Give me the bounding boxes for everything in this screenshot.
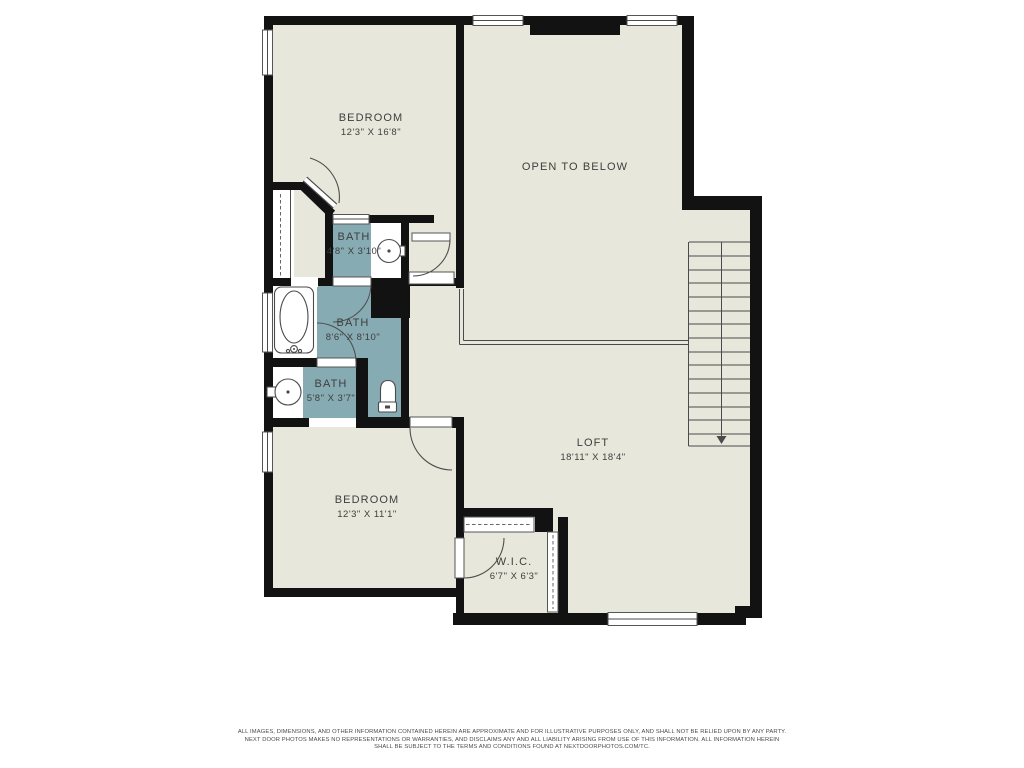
room-name: BATH — [326, 317, 380, 329]
room-name: BATH — [307, 378, 356, 390]
door-leaf — [410, 417, 452, 427]
door-leaf — [412, 233, 450, 241]
window — [627, 16, 677, 26]
room-label-bath-top: BATH 4'8" X 3'10" — [327, 231, 381, 257]
chase-wall — [371, 278, 410, 318]
room-label-loft: LOFT 18'11" X 18'4" — [560, 437, 625, 463]
linen-closet-floor — [273, 190, 290, 278]
bathtub-icon — [275, 287, 314, 353]
room-name: OPEN TO BELOW — [522, 161, 628, 173]
nook-floor — [403, 278, 456, 418]
room-label-bath-mid: BATH 8'6" X 8'10" — [326, 317, 380, 343]
room-label-bedroom2: BEDROOM 12'3" X 11'1" — [335, 494, 400, 520]
room-label-bath-low: BATH 5'8" X 3'7" — [307, 378, 356, 404]
room-name: LOFT — [560, 437, 625, 449]
room-name: BEDROOM — [339, 112, 404, 124]
floor-plan-page: BEDROOM 12'3" X 16'8" OPEN TO BELOW BATH… — [0, 0, 1024, 768]
window — [333, 215, 369, 225]
room-name: BEDROOM — [335, 494, 400, 506]
room-dims: 6'7" X 6'3" — [490, 571, 539, 582]
door-leaf — [455, 538, 464, 578]
room-dims: 4'8" X 3'10" — [327, 246, 381, 257]
window — [473, 16, 523, 26]
disclaimer-line: NEXT DOOR PHOTOS MAKES NO REPRESENTATION… — [0, 737, 1024, 745]
room-label-open-below: OPEN TO BELOW — [522, 161, 628, 173]
room-name: W.I.C. — [490, 556, 539, 568]
room-dims: 18'11" X 18'4" — [560, 452, 625, 463]
cased-opening — [409, 272, 454, 284]
room-name: BATH — [327, 231, 381, 243]
room-label-wic: W.I.C. 6'7" X 6'3" — [490, 556, 539, 582]
door-leaf — [333, 277, 371, 286]
disclaimer-line: ALL IMAGES, DIMENSIONS, AND OTHER INFORM… — [0, 729, 1024, 737]
room-dims: 8'6" X 8'10" — [326, 332, 380, 343]
toilet-icon — [379, 381, 397, 413]
open-below-floor — [456, 16, 694, 212]
room-label-bedroom1: BEDROOM 12'3" X 16'8" — [339, 112, 404, 138]
disclaimer: ALL IMAGES, DIMENSIONS, AND OTHER INFORM… — [0, 729, 1024, 752]
window — [263, 293, 273, 352]
window — [608, 613, 697, 626]
bedroom1-floor — [272, 24, 456, 190]
door-leaf — [317, 358, 356, 367]
room-dims: 12'3" X 16'8" — [339, 127, 404, 138]
room-dims: 5'8" X 3'7" — [307, 393, 356, 404]
floor-plan-drawing — [0, 0, 1024, 768]
room-dims: 12'3" X 11'1" — [335, 509, 400, 520]
window — [263, 30, 273, 75]
doorway-gap — [291, 277, 318, 287]
disclaimer-line: SHALL BE SUBJECT TO THE TERMS AND CONDIT… — [0, 744, 1024, 752]
window — [263, 432, 273, 472]
doorway-gap — [309, 418, 356, 427]
